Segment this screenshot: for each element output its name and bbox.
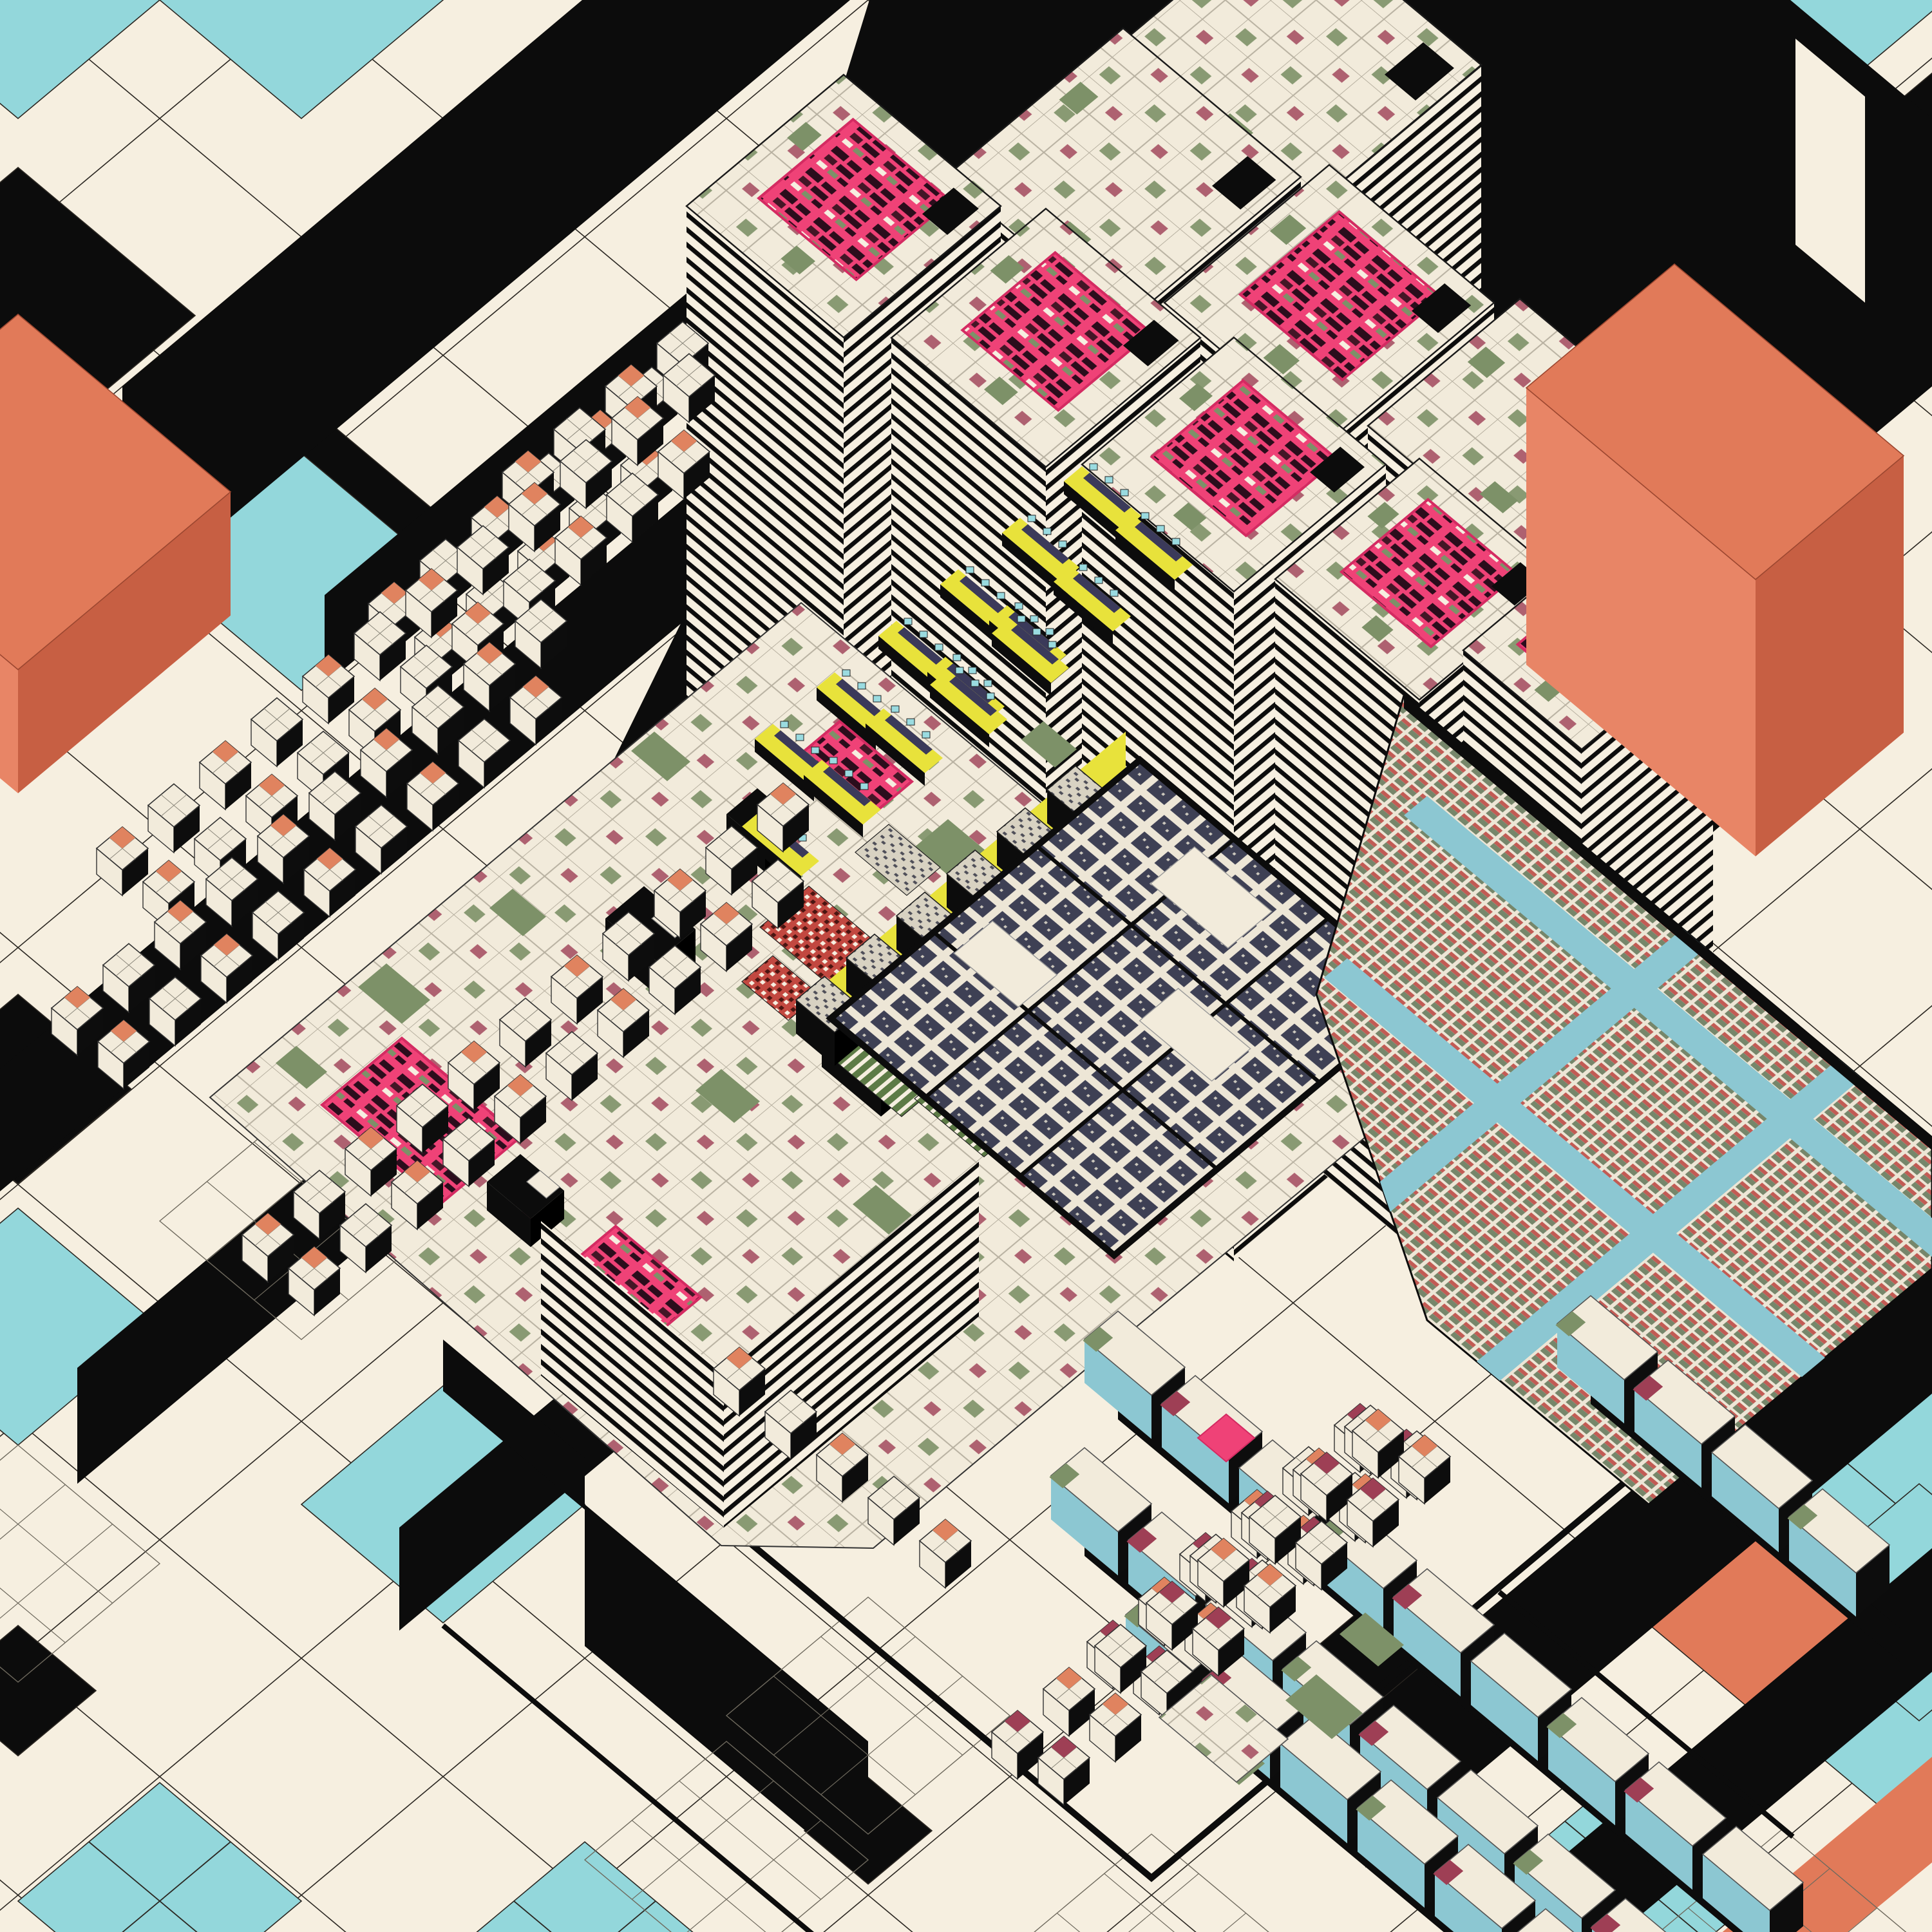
cyan-dot	[860, 783, 868, 790]
artwork: Isometric generative city block	[0, 0, 1932, 1932]
cyan-dot	[873, 696, 881, 702]
cyan-dot	[971, 680, 979, 687]
cyan-dot	[796, 734, 804, 741]
cyan-dot	[1030, 616, 1038, 622]
cyan-dot	[845, 770, 853, 777]
cyan-dot	[981, 580, 989, 586]
cyan-dot	[953, 654, 961, 661]
artwork-canvas	[0, 0, 1932, 1932]
cyan-dot	[1043, 528, 1051, 535]
cyan-dot	[984, 680, 992, 687]
cyan-dot	[920, 631, 927, 638]
cyan-dot	[922, 732, 930, 738]
cyan-dot	[956, 667, 963, 674]
cyan-dot	[1110, 590, 1118, 596]
cyan-dot	[1105, 477, 1113, 483]
cyan-dot	[966, 567, 974, 573]
cyan-dot	[1121, 489, 1128, 496]
cyan-dot	[891, 706, 899, 712]
cyan-dot	[811, 747, 819, 753]
cyan-dot	[1079, 564, 1087, 571]
cyan-dot	[935, 644, 943, 650]
cyan-dot	[1018, 616, 1025, 622]
cyan-dot	[858, 683, 866, 689]
cyan-dot	[1046, 629, 1054, 635]
cyan-dot	[781, 721, 788, 728]
cyan-dot	[1015, 603, 1023, 609]
cyan-dot	[1033, 629, 1041, 635]
cyan-dot	[1048, 641, 1056, 648]
cyan-dot	[997, 592, 1005, 599]
cyan-dot	[969, 667, 976, 674]
cyan-dot	[1028, 515, 1036, 522]
cyan-dot	[829, 757, 837, 764]
cyan-dot	[904, 618, 912, 625]
cyan-dot	[1157, 526, 1164, 532]
cyan-dot	[1141, 513, 1149, 519]
cyan-dot	[907, 719, 914, 725]
cyan-dot	[987, 693, 994, 699]
cyan-dot	[1172, 538, 1180, 545]
cyan-dot	[1095, 577, 1103, 583]
cyan-dot	[842, 670, 850, 676]
cyan-dot	[1090, 464, 1097, 470]
cyan-dot	[1059, 541, 1066, 547]
